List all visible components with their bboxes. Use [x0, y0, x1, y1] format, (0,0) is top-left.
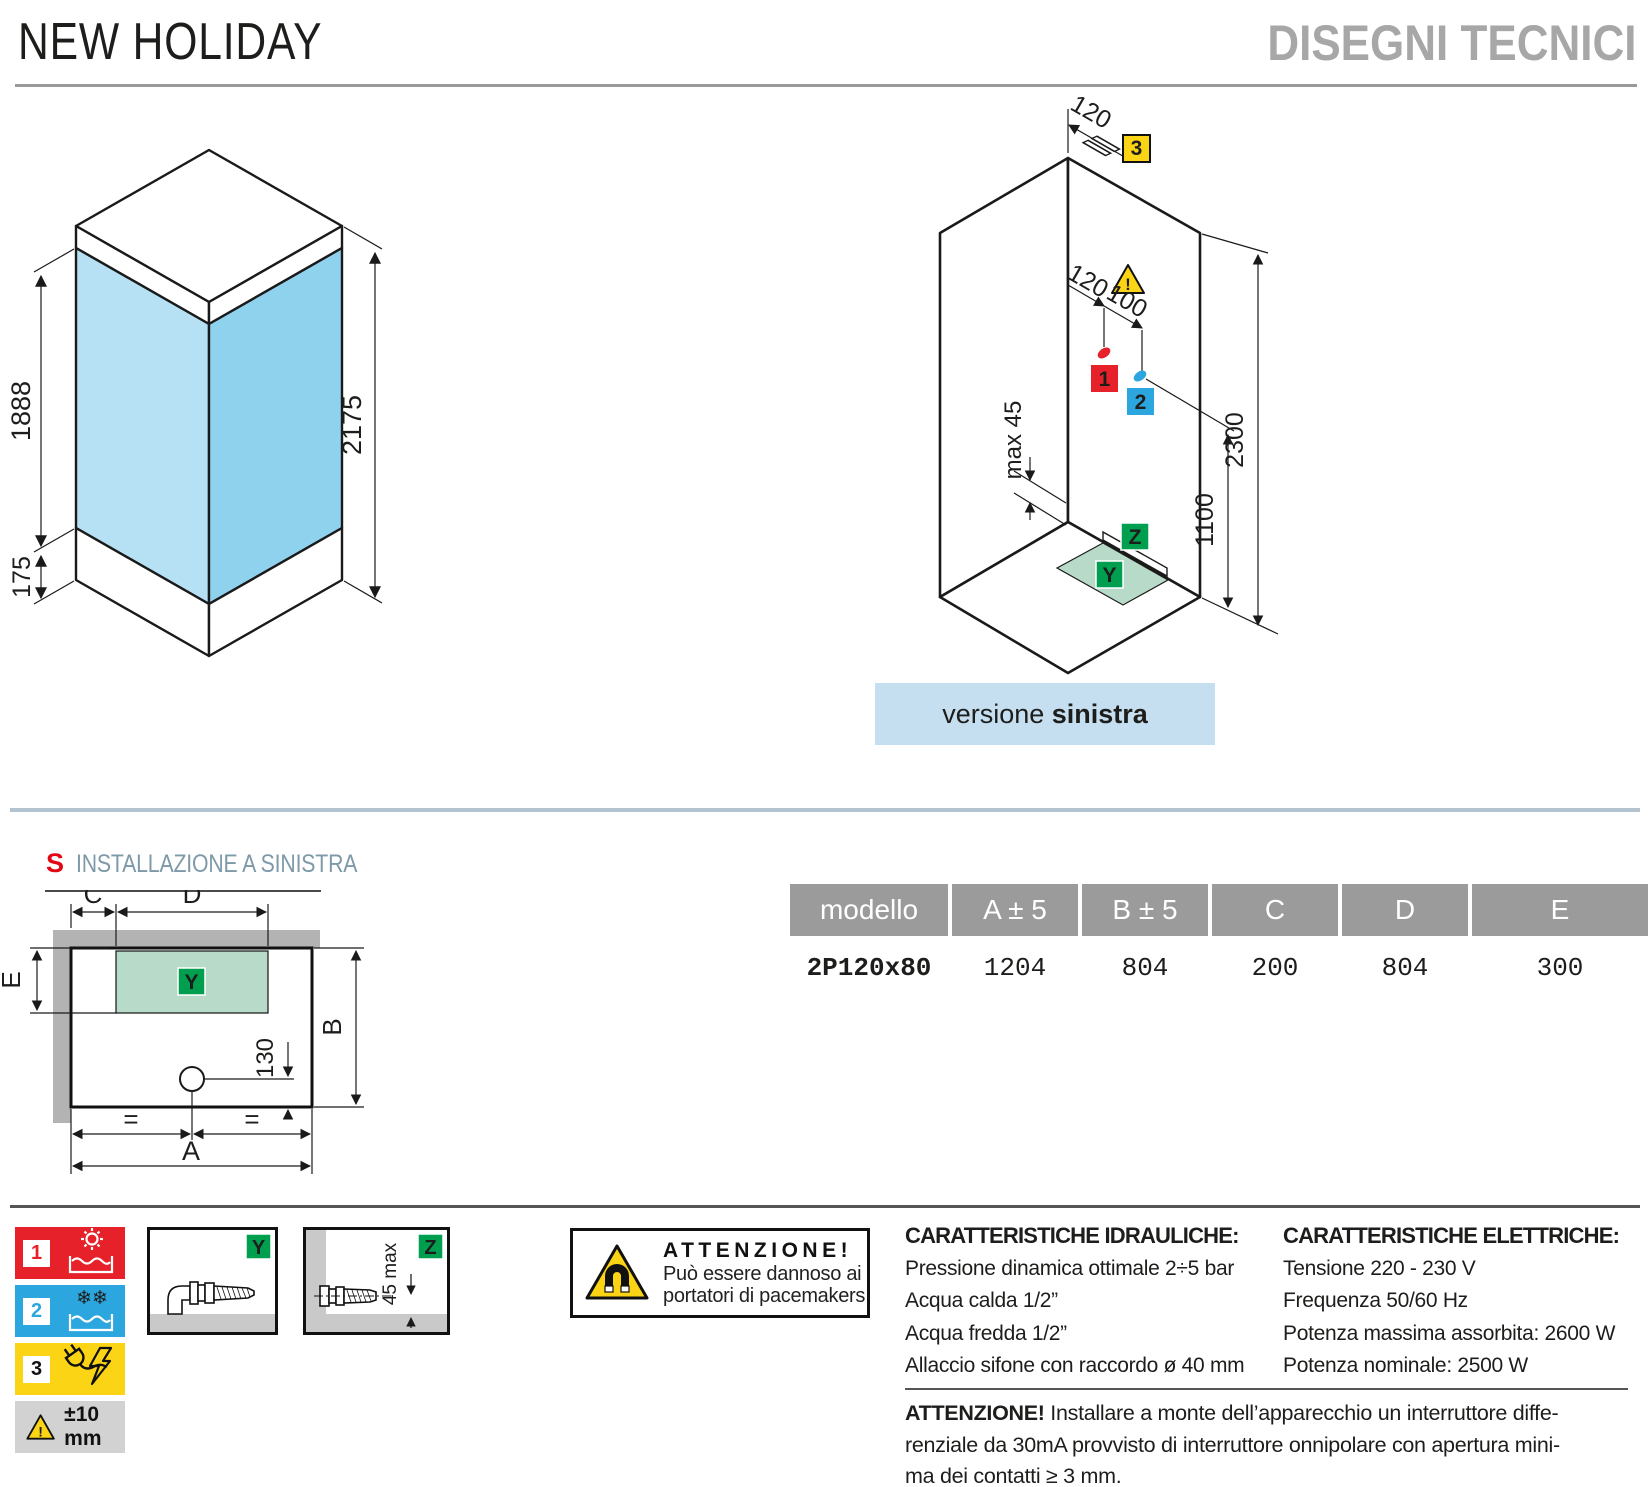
- plan-drawing: Y C D E B 130 =: [0, 890, 380, 1190]
- badge-2-label: 2: [1135, 391, 1147, 414]
- badge-Y-label: Y: [1102, 564, 1116, 587]
- y-detail-badge-label: Y: [252, 1237, 266, 1259]
- badge-Z-label: Z: [1129, 526, 1142, 549]
- electric-icon: [56, 1344, 122, 1394]
- front-view-drawing: 1888 175 2175: [10, 130, 430, 675]
- magnet-warning-icon: [583, 1242, 651, 1304]
- tolerance-label: ±10 mm: [64, 1403, 125, 1451]
- electric-line-2: Frequenza 50/60 Hz: [1283, 1285, 1619, 1318]
- y-detail-drawing: Y: [150, 1230, 275, 1332]
- legend-num-3: 3: [23, 1356, 50, 1383]
- plan-dim-E: E: [0, 971, 26, 988]
- col-header-modello: modello: [790, 884, 948, 936]
- footer-warning-bold: ATTENZIONE!: [905, 1401, 1045, 1425]
- dim-tray-height: 175: [10, 556, 36, 598]
- pacemaker-warning-line2: portatori di pacemakers: [663, 1285, 865, 1307]
- dim-top-120: 120: [1066, 95, 1116, 135]
- page-title: NEW HOLIDAY: [18, 12, 322, 72]
- cold-water-icon: ❄❄: [56, 1286, 122, 1336]
- dimensions-table: modello A ± 5 B ± 5 C D E 2P120x80 1204 …: [790, 884, 1648, 988]
- datasheet-page: NEW HOLIDAY DISEGNI TECNICI 1888 175: [0, 0, 1650, 1487]
- legend-num-2: 2: [23, 1298, 50, 1325]
- plan-dim-C: C: [84, 890, 103, 909]
- footer-warning-line2: renziale da 30mA provvisto di interrutto…: [905, 1430, 1645, 1462]
- footer-warning-line3: ma dei contatti ≥ 3 mm.: [905, 1461, 1645, 1487]
- caption-bold: sinistra: [1052, 699, 1148, 730]
- caption-normal: versione: [942, 699, 1044, 730]
- legend: 1 2 ❄❄: [15, 1227, 125, 1459]
- table-header-row: modello A ± 5 B ± 5 C D E: [790, 884, 1648, 936]
- tolerance-warning-mark: !: [38, 1423, 43, 1439]
- dim-total-height: 2175: [337, 395, 367, 455]
- footer-warning-line1: Installare a monte dell’apparecchio un i…: [1045, 1401, 1559, 1425]
- dim-2300: 2300: [1221, 412, 1249, 468]
- hydraulic-specs: CARATTERISTICHE IDRAULICHE: Pressione di…: [905, 1220, 1244, 1383]
- dim-glass-height: 1888: [10, 381, 36, 441]
- dim-max45-label: max 45: [1000, 401, 1027, 480]
- hot-water-icon: [56, 1228, 122, 1278]
- pacemaker-warning-box: ATTENZIONE! Può essere dannoso ai portat…: [570, 1228, 870, 1318]
- electric-specs: CARATTERISTICHE ELETTRICHE: Tensione 220…: [1283, 1220, 1619, 1383]
- cell-A: 1204: [952, 948, 1078, 988]
- detail-box-Z: 45 max Z: [303, 1227, 450, 1335]
- col-header-B: B ± 5: [1082, 884, 1208, 936]
- tolerance-warning-icon: !: [25, 1409, 56, 1445]
- plan-dim-B: B: [317, 1018, 347, 1035]
- plan-drain-hole: [180, 1067, 204, 1091]
- page-subtitle: DISEGNI TECNICI: [1267, 14, 1636, 72]
- hydraulic-line-4: Allaccio sifone con raccordo ø 40 mm: [905, 1350, 1244, 1383]
- plan-wall-top: [53, 930, 320, 948]
- electric-line-4: Potenza nominale: 2500 W: [1283, 1350, 1619, 1383]
- table-row: 2P120x80 1204 804 200 804 300: [790, 948, 1648, 988]
- hydraulic-line-3: Acqua fredda 1/2”: [905, 1318, 1244, 1351]
- plan-dim-A: A: [182, 1136, 200, 1166]
- z-floor-strip: [306, 1314, 447, 1332]
- installation-view-drawing: 120 3 ! 120 100 1 2 max 45: [880, 95, 1300, 685]
- detail-box-Y: Y: [147, 1227, 278, 1335]
- plan-eq-right: =: [244, 1104, 259, 1134]
- pacemaker-warning-line1: Può essere dannoso ai: [663, 1263, 865, 1285]
- footer-divider: [905, 1388, 1628, 1390]
- header-divider: [15, 84, 1637, 87]
- section-divider: [10, 808, 1640, 812]
- plan-title-text: INSTALLAZIONE A SINISTRA: [76, 850, 357, 879]
- hydraulic-line-2: Acqua calda 1/2”: [905, 1285, 1244, 1318]
- cell-B: 804: [1082, 948, 1208, 988]
- cell-E: 300: [1472, 948, 1648, 988]
- plan-dim-130: 130: [252, 1038, 279, 1078]
- duct-symbol: [1083, 136, 1119, 155]
- plan-badge-Y-label: Y: [184, 971, 198, 994]
- plan-section-title: SINSTALLAZIONE A SINISTRA: [46, 848, 407, 879]
- electric-line-1: Tensione 220 - 230 V: [1283, 1253, 1619, 1286]
- col-header-E: E: [1472, 884, 1648, 936]
- cell-model: 2P120x80: [790, 948, 948, 988]
- hydraulic-line-1: Pressione dinamica ottimale 2÷5 bar: [905, 1253, 1244, 1286]
- badge-1-label: 1: [1099, 368, 1111, 391]
- plan-wall-left: [53, 930, 71, 1123]
- legend-item-electric: 3: [15, 1343, 125, 1395]
- electric-line-3: Potenza massima assorbita: 2600 W: [1283, 1318, 1619, 1351]
- y-floor-strip: [150, 1314, 275, 1332]
- col-header-C: C: [1212, 884, 1338, 936]
- room-left-wall: [940, 158, 1068, 597]
- electric-title: CARATTERISTICHE ELETTRICHE:: [1283, 1220, 1619, 1253]
- z-detail-drawing: 45 max Z: [306, 1230, 447, 1332]
- cell-C: 200: [1212, 948, 1338, 988]
- legend-divider: [10, 1205, 1640, 1208]
- hydraulic-title: CARATTERISTICHE IDRAULICHE:: [905, 1220, 1244, 1253]
- y-pipe-elbow: [168, 1286, 190, 1314]
- footer-warning: ATTENZIONE! Installare a monte dell’appa…: [905, 1398, 1645, 1487]
- z-dim-label: 45 max: [380, 1242, 401, 1305]
- cell-D: 804: [1342, 948, 1468, 988]
- badge-3-label: 3: [1131, 137, 1143, 160]
- plan-eq-left: =: [123, 1104, 138, 1134]
- col-header-D: D: [1342, 884, 1468, 936]
- legend-item-tolerance: ! ±10 mm: [15, 1401, 125, 1453]
- snowflakes-glyph: ❄❄: [76, 1287, 108, 1309]
- col-header-A: A ± 5: [952, 884, 1078, 936]
- z-detail-badge-label: Z: [424, 1237, 436, 1259]
- version-caption: versione sinistra: [875, 683, 1215, 745]
- legend-item-hot-water: 1: [15, 1227, 125, 1279]
- legend-num-1: 1: [23, 1240, 50, 1267]
- plan-dim-D: D: [183, 890, 202, 909]
- pacemaker-warning-title: ATTENZIONE!: [663, 1239, 865, 1263]
- dim-1100: 1100: [1191, 493, 1219, 547]
- plan-title-letter: S: [46, 848, 64, 878]
- legend-item-cold-water: 2 ❄❄: [15, 1285, 125, 1337]
